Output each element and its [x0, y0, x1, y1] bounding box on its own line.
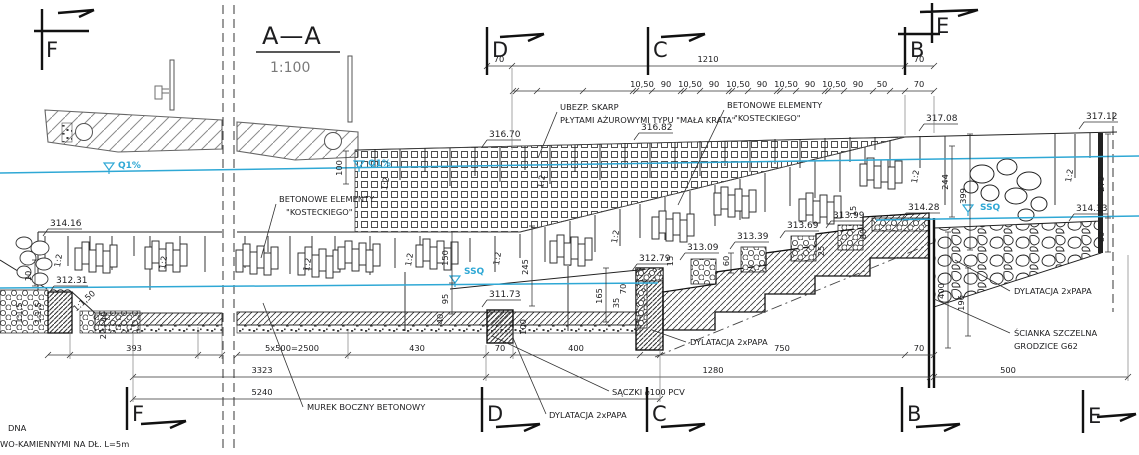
dim-label: 10,50 — [822, 79, 846, 89]
dim-label: 60 — [721, 256, 731, 267]
annotation-label: ŚCIANKA SZCZELNA — [1014, 327, 1097, 338]
dim-label: 40 — [99, 312, 109, 323]
drawing-sheet: Q1% Q1% SSQ SSQ 314.16 312.31 316.70 316… — [0, 0, 1139, 455]
title-section: A—A — [262, 22, 322, 50]
annotation-note: WO-KAMIENNYMI NA DŁ. L=5m — [0, 439, 129, 449]
dim-label: 400 — [936, 283, 946, 299]
pipe-circle-icon — [76, 124, 93, 141]
dim-label: 3323 — [251, 365, 272, 375]
dim-label: 245 — [520, 259, 530, 275]
dim-label: 20 — [98, 329, 108, 340]
dim-label: 90 — [709, 79, 720, 89]
annotation-label: SĄCZKI ⌀100 PCV — [612, 387, 685, 397]
section-marker-e-bottom: E — [1088, 404, 1101, 428]
dim-label: 95 — [440, 294, 450, 305]
gravel-bedding-left — [95, 325, 222, 333]
dim-label: 10,50 — [678, 79, 702, 89]
dim-label: 90 — [853, 79, 864, 89]
dim-label: 70 — [914, 343, 925, 353]
dim-label: 400 — [568, 343, 584, 353]
dim-label: 80 — [1096, 232, 1106, 243]
dim-label: 70 — [914, 79, 925, 89]
pipe-circle-icon — [325, 133, 342, 150]
dim-label: 196 — [956, 295, 966, 311]
elevation-label: 314.16 — [50, 219, 82, 229]
section-marker-f-bottom: F — [132, 402, 144, 426]
section-marker-c-bottom: C — [652, 402, 667, 426]
concrete-slab-left — [95, 313, 222, 325]
dim-label: 90 — [661, 79, 672, 89]
left-boulders — [16, 237, 52, 285]
dim-label: 5x500=2500 — [265, 343, 319, 353]
dim-label: 1210 — [697, 54, 718, 64]
elevation-label: 313.69 — [787, 221, 819, 231]
elevation-label: 316.70 — [489, 130, 521, 140]
annotation-label: UBEZP. SKARP — [560, 102, 619, 112]
annotation-label: DYLATACJA 2xPAPA — [549, 410, 627, 420]
elevation-label: 317.08 — [926, 114, 958, 124]
section-marker-e-top: E — [936, 14, 949, 38]
elevation-label: 314.33 — [1076, 204, 1108, 214]
dim-label: 90 — [757, 79, 768, 89]
annotation-label: BETONOWE ELEMENTY — [279, 194, 375, 204]
dim-label: 279 — [1096, 176, 1106, 192]
dim-label: 430 — [409, 343, 425, 353]
dim-label: 100 — [518, 319, 528, 335]
dim-label: 50 — [877, 79, 888, 89]
section-marker-f-top: F — [46, 38, 58, 62]
dim-label: 25 — [816, 246, 826, 257]
dim-label: 10 — [23, 271, 33, 282]
dim-label: 150 — [440, 250, 450, 266]
dim-label: 70 — [495, 343, 506, 353]
dim-label: 90 — [805, 79, 816, 89]
annotation-label: MUREK BOCZNY BETONOWY — [307, 402, 426, 412]
annotation-label: "KOSTECKIEGO" — [734, 113, 801, 123]
section-a-a-drawing: Q1% Q1% SSQ SSQ 314.16 312.31 316.70 316… — [0, 0, 1139, 455]
elevation-label: 314.28 — [908, 203, 940, 213]
dim-label: 165 — [594, 288, 604, 304]
gravel-bedding-main — [237, 325, 640, 333]
elevation-label: 317.12 — [1086, 112, 1118, 122]
q1-label: Q1% — [118, 161, 141, 171]
q1-label: Q1% — [368, 159, 391, 169]
dim-label: 10,50 — [630, 79, 654, 89]
dim-label: 399 — [958, 188, 968, 204]
annotation-label: GRODZICE G62 — [1014, 341, 1078, 351]
dim-label: 5240 — [251, 387, 272, 397]
dim-label: 15 — [665, 256, 675, 267]
annotation-label: PŁYTAMI AŻUROWYMI TYPU "MAŁA KRATA" — [560, 115, 736, 125]
dim-label: 750 — [774, 343, 790, 353]
expansion-joint-block — [487, 310, 513, 343]
ssq-label: SSQ — [464, 267, 485, 277]
dim-label: 244 — [940, 174, 950, 190]
annotation-label: DYLATACJA 2xPAPA — [1014, 286, 1092, 296]
concrete-sill-block — [48, 292, 72, 333]
annotation-note: DNA — [8, 423, 27, 433]
dim-label: 15 — [848, 206, 858, 217]
section-marker-b-bottom: B — [907, 402, 921, 426]
ssq-label: SSQ — [980, 203, 1001, 213]
dim-label: 40 — [435, 314, 445, 325]
dim-label: 10,50 — [774, 79, 798, 89]
section-marker-c-top: C — [653, 38, 668, 62]
elevation-label: 312.31 — [56, 276, 88, 286]
slope-label: 1:1,5 — [33, 302, 43, 323]
dim-label: 10,50 — [726, 79, 750, 89]
section-marker-b-top: B — [910, 38, 924, 62]
elevation-label: 313.39 — [737, 232, 769, 242]
section-marker-d-bottom: D — [487, 402, 503, 426]
section-marker-d-top: D — [492, 38, 508, 62]
dim-label: 35 — [611, 298, 621, 309]
annotation-label: "KOSTECKIEGO" — [286, 207, 353, 217]
dim-label: 80 — [858, 229, 868, 240]
dim-label: 70 — [618, 284, 628, 295]
dim-label: 1280 — [702, 365, 723, 375]
dim-label: 393 — [126, 343, 142, 353]
elevation-label: 313.09 — [687, 243, 719, 253]
title-scale: 1:100 — [270, 60, 310, 76]
slope-label: 1:1,5 — [14, 302, 24, 323]
dim-label: 100 — [334, 160, 344, 176]
elevation-label: 311.73 — [489, 290, 521, 300]
annotation-label: BETONOWE ELEMENTY — [727, 100, 823, 110]
annotation-label: DYLATACJA 2xPAPA — [690, 337, 768, 347]
dim-label: 500 — [1000, 365, 1016, 375]
